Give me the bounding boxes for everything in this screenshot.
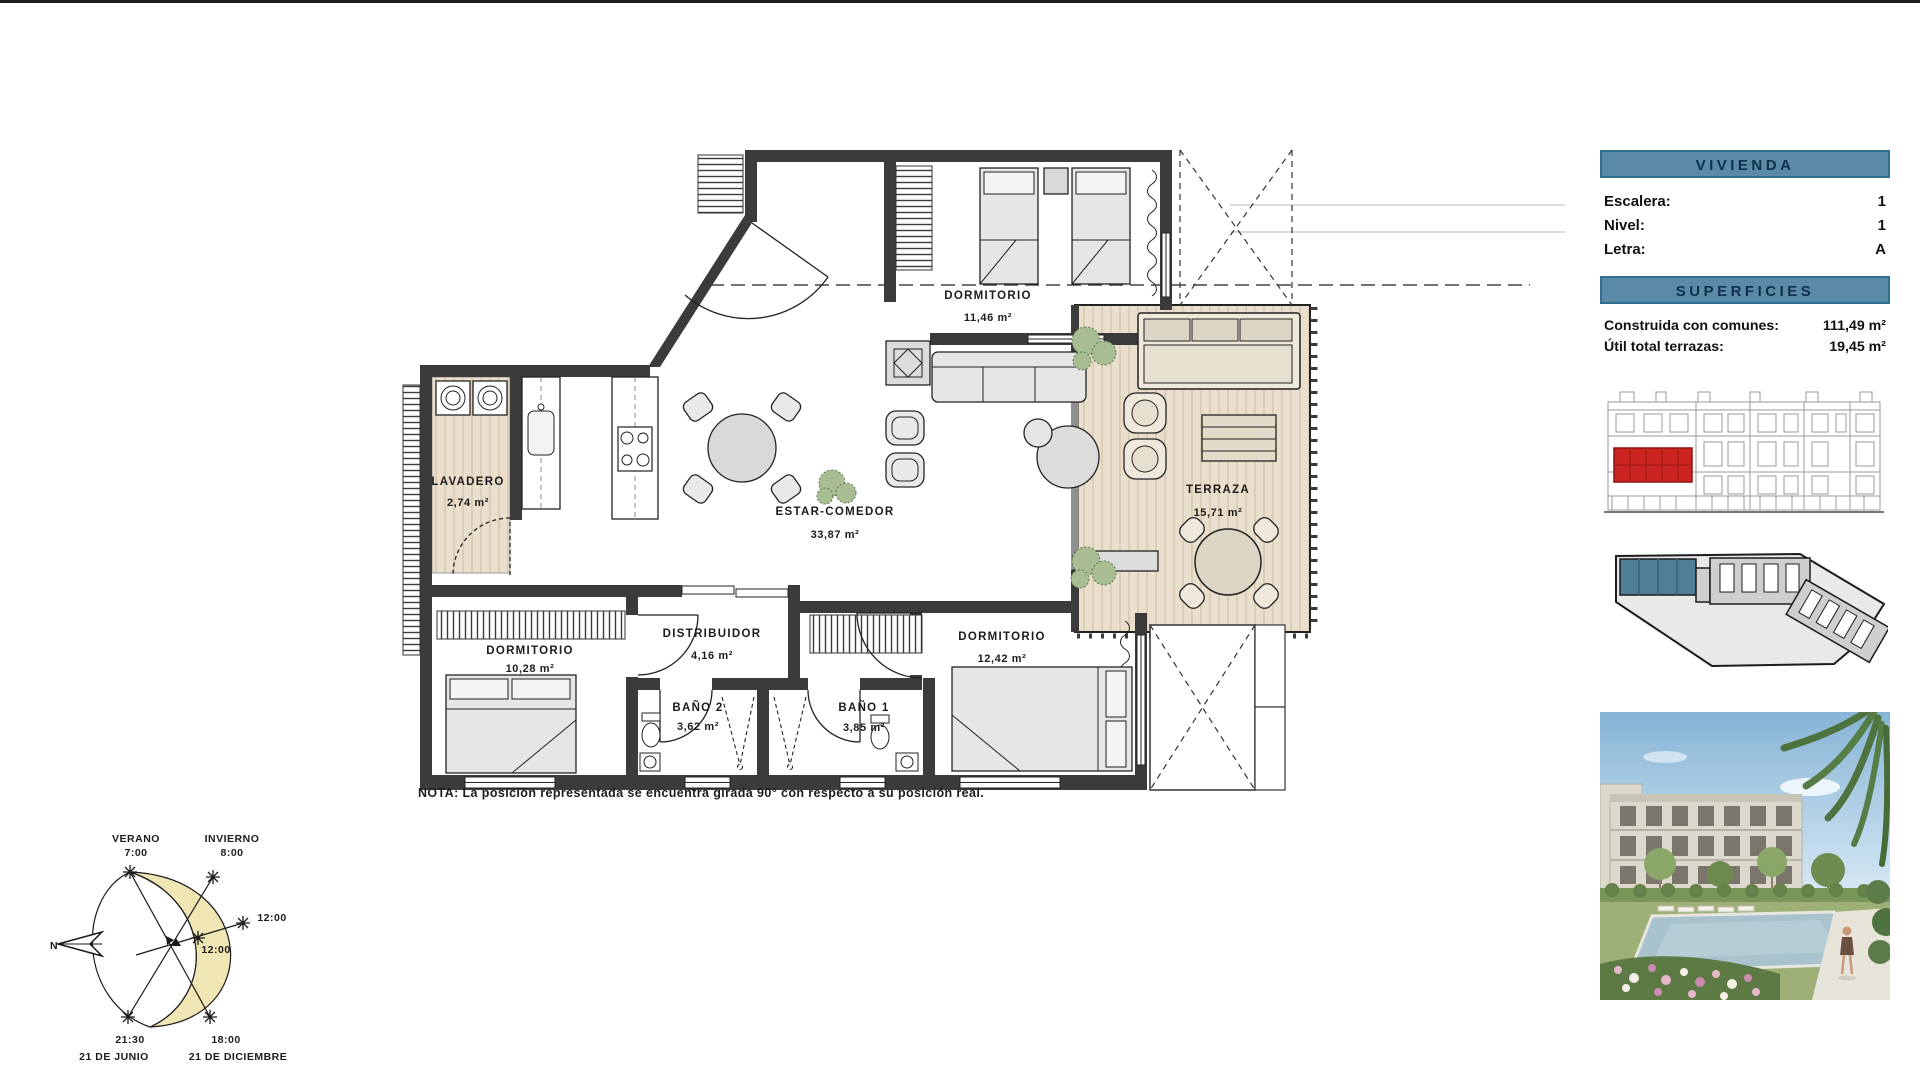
sun-loungers <box>1658 906 1754 912</box>
invierno-label: INVIERNO <box>205 833 260 845</box>
room-area: 15,71 m² <box>1194 507 1243 519</box>
summer-set-date: 21 DE JUNIO <box>79 1051 149 1063</box>
util-label: Útil total terrazas: <box>1604 337 1724 358</box>
superficies-rows: Construida con comunes: 111,49 m² Útil t… <box>1600 314 1890 358</box>
room-area: 11,46 m² <box>964 312 1012 324</box>
wardrobe-dorm2 <box>437 611 625 639</box>
kitchen-sink <box>528 411 554 455</box>
winter-set-time: 18:00 <box>211 1034 240 1046</box>
building-elevation <box>1600 384 1888 524</box>
north-compass-icon <box>58 932 102 956</box>
kitchen-island <box>612 377 658 519</box>
verano-label: VERANO <box>112 833 160 845</box>
verano-time: 7:00 <box>124 847 147 859</box>
north-label: N <box>50 940 58 952</box>
single-bed <box>980 168 1038 284</box>
dining-chair <box>681 391 715 424</box>
util-value: 19,45 m² <box>1829 337 1886 358</box>
shower <box>722 697 754 770</box>
vivienda-header: VIVIENDA <box>1600 150 1890 178</box>
nivel-label: Nivel: <box>1604 214 1645 238</box>
construida-row: Construida con comunes: 111,49 m² <box>1604 316 1886 337</box>
room-label: DISTRIBUIDOR <box>663 628 762 640</box>
washer <box>436 381 470 415</box>
room-label: BAÑO 2 <box>672 701 723 714</box>
landing-stair-hatch <box>698 155 743 213</box>
winter-set-date: 21 DE DICIEMBRE <box>189 1051 288 1063</box>
room-area: 12,42 m² <box>978 653 1027 665</box>
room-area: 3,85 m² <box>843 722 885 734</box>
room-label: DORMITORIO <box>958 631 1046 643</box>
room-area: 3,62 m² <box>677 721 719 733</box>
toilet <box>642 713 660 747</box>
shower <box>774 697 806 770</box>
room-area: 4,16 m² <box>691 650 733 662</box>
highlighted-unit-red <box>1614 448 1692 482</box>
render-photo <box>1600 712 1890 1000</box>
room-label: BAÑO 1 <box>838 701 889 714</box>
dining-chair <box>769 391 803 424</box>
site-plan <box>1600 542 1888 692</box>
room-area: 33,87 m² <box>811 529 860 541</box>
bathroom-sink <box>640 753 660 771</box>
room-label: TERRAZA <box>1186 484 1250 496</box>
escalera-row: Escalera: 1 <box>1604 190 1886 214</box>
room-label: DORMITORIO <box>944 290 1032 302</box>
sheet-top-border <box>0 0 1920 3</box>
letra-value: A <box>1875 238 1886 262</box>
exterior-louver <box>403 385 420 655</box>
side-table-square <box>886 341 930 385</box>
sofa <box>932 352 1086 402</box>
bedroom-louver-closet <box>896 166 932 270</box>
vivienda-rows: Escalera: 1 Nivel: 1 Letra: A <box>1600 188 1890 262</box>
info-panel: VIVIENDA Escalera: 1 Nivel: 1 Letra: A S… <box>1600 150 1890 1000</box>
room-area: 2,74 m² <box>447 497 489 509</box>
dining-chair <box>681 473 715 506</box>
room-area: 10,28 m² <box>506 663 555 675</box>
room-label: ESTAR-COMEDOR <box>776 506 895 518</box>
escalera-value: 1 <box>1878 190 1886 214</box>
armchair <box>886 411 924 445</box>
sun-path-diagram: VERANO 7:00 INVIERNO 8:00 12:00 12:00 N … <box>48 822 348 1072</box>
kitchen-counter <box>522 377 560 509</box>
slat-table <box>1202 415 1276 461</box>
room-label: LAVADERO <box>431 476 504 488</box>
noon-outer-label: 12:00 <box>257 912 286 924</box>
nightstand <box>1044 168 1068 194</box>
orientation-note: NOTA: La posición representada se encuen… <box>418 786 984 800</box>
superficies-header: SUPERFICIES <box>1600 276 1890 304</box>
x-brace-upper <box>1180 150 1292 305</box>
armchair <box>886 453 924 487</box>
construida-value: 111,49 m² <box>1823 316 1886 337</box>
reference-lines <box>710 205 1565 285</box>
outdoor-sofa <box>1138 313 1300 389</box>
construida-label: Construida con comunes: <box>1604 316 1779 337</box>
escalera-label: Escalera: <box>1604 190 1671 214</box>
outdoor-chair <box>1124 393 1166 433</box>
plan-sheet: DORMITORIO 11,46 m² LAVADERO 2,74 m² EST… <box>0 0 1920 1080</box>
x-brace-lower <box>1150 625 1285 790</box>
summer-set-time: 21:30 <box>115 1034 144 1046</box>
site-block <box>1710 558 1810 604</box>
letra-row: Letra: A <box>1604 238 1886 262</box>
dining-table <box>708 414 776 482</box>
double-bed <box>952 667 1132 771</box>
letra-label: Letra: <box>1604 238 1646 262</box>
dining-chair <box>769 473 803 506</box>
single-bed <box>1072 168 1130 284</box>
floor-plan: DORMITORIO 11,46 m² LAVADERO 2,74 m² EST… <box>380 115 1570 815</box>
double-bed <box>446 675 576 773</box>
bathroom-sink <box>896 753 918 771</box>
nivel-value: 1 <box>1878 214 1886 238</box>
util-row: Útil total terrazas: 19,45 m² <box>1604 337 1886 358</box>
side-table-round <box>1024 419 1052 447</box>
dryer <box>473 381 507 415</box>
noon-inner-label: 12:00 <box>201 944 230 956</box>
nivel-row: Nivel: 1 <box>1604 214 1886 238</box>
room-label: DORMITORIO <box>486 645 574 657</box>
terrace-table <box>1195 529 1261 595</box>
invierno-time: 8:00 <box>220 847 243 859</box>
outdoor-chair <box>1124 439 1166 479</box>
